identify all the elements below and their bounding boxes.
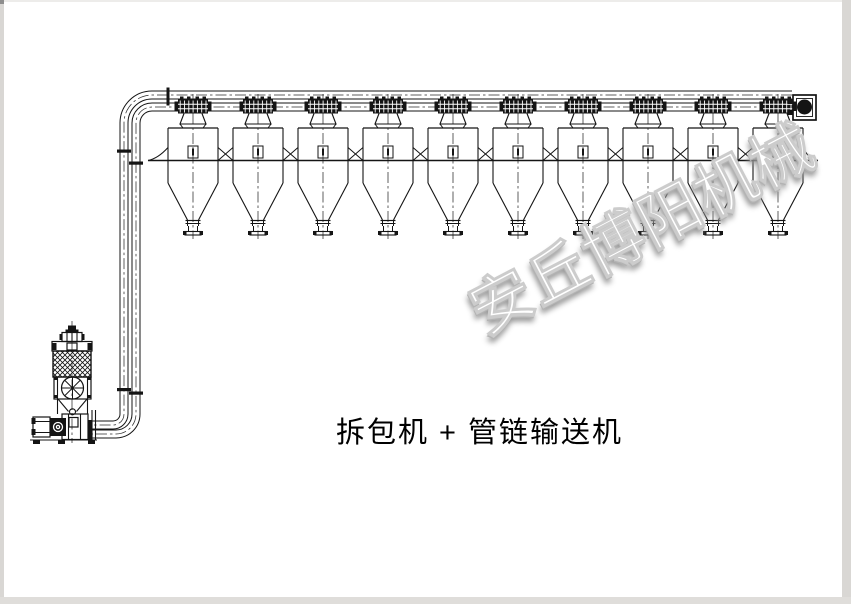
caption-text: 拆包机 + 管链输送机 bbox=[336, 409, 623, 451]
hopper bbox=[168, 94, 218, 239]
hopper bbox=[688, 94, 738, 239]
hopper bbox=[558, 94, 608, 239]
hopper bbox=[363, 94, 413, 239]
page-border-left bbox=[0, 0, 4, 604]
machinery-diagram-page: 安丘博阳机械 拆包机 + 管链输送机 bbox=[0, 0, 851, 604]
hopper bbox=[623, 94, 673, 239]
hopper bbox=[233, 94, 283, 239]
hopper bbox=[298, 94, 348, 239]
page-corner-mark bbox=[0, 0, 4, 4]
page-border-bottom bbox=[0, 597, 851, 604]
bag-breaker-machine bbox=[30, 321, 97, 444]
hopper-row bbox=[168, 94, 803, 239]
hopper bbox=[493, 94, 543, 239]
hopper bbox=[753, 94, 803, 239]
diagram-canvas bbox=[0, 0, 851, 604]
hopper bbox=[428, 94, 478, 239]
pipe-flange-ticks bbox=[89, 88, 170, 440]
page-border-top bbox=[0, 0, 851, 2]
page-border-right bbox=[842, 0, 851, 604]
